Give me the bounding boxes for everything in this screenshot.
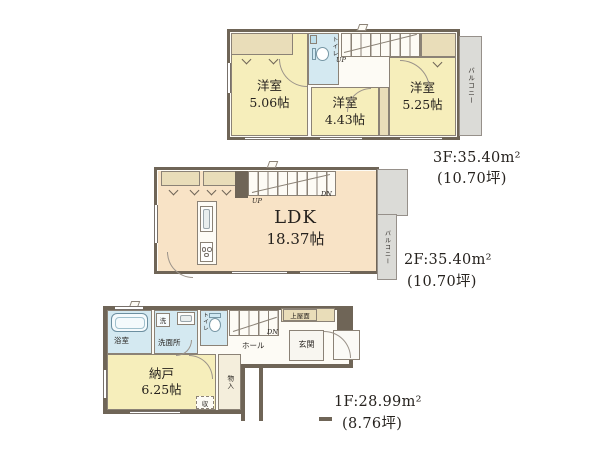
floor2-balcony: バルコニー: [377, 214, 397, 280]
kitchen-sink-basin: [203, 209, 210, 229]
bathroom-label: 浴室: [114, 335, 129, 346]
room-size: 5.06帖: [249, 95, 289, 111]
stairs-down-label: DN: [321, 190, 332, 198]
sink-icon: [177, 312, 195, 325]
balcony-label: バルコニー: [383, 230, 392, 265]
window: [400, 137, 442, 141]
porch-wall: [259, 364, 263, 421]
window: [300, 271, 350, 275]
canopy-label-box: 上屋面: [283, 309, 317, 321]
toilet-label: トイレ: [330, 36, 339, 57]
toilet-label: トイレ: [201, 312, 209, 332]
room-size: 5.25帖: [402, 97, 442, 113]
hanger-chevron-icon: [222, 186, 232, 196]
hanger-chevron-icon: [169, 186, 179, 196]
balcony-label: バルコニー: [466, 67, 476, 105]
washer-label: 洗: [160, 315, 167, 325]
burner-icon: [207, 247, 212, 252]
entrance-step-mark: [319, 417, 332, 421]
burner-icon: [202, 247, 207, 252]
floor1-tsubo-label: (8.76坪): [342, 412, 402, 433]
hanger-chevron-icon: [242, 55, 252, 65]
stairs-up-label: UP: [336, 56, 346, 64]
ldk-name: LDK: [233, 207, 358, 228]
canopy-label: 上屋面: [290, 310, 310, 320]
floor3-balcony: バルコニー: [459, 36, 482, 136]
closet: [231, 33, 293, 55]
hanger-chevron-icons: [434, 59, 441, 66]
window: [115, 306, 143, 310]
floor2-balcony-upper: [377, 169, 408, 216]
hanger-chevron-icons: [243, 56, 277, 63]
stairs-up-label: UP: [252, 197, 262, 205]
closet: [421, 33, 456, 57]
hall-label: ホール: [242, 340, 265, 351]
closet: [379, 87, 389, 136]
stairs-down-label: DN: [267, 328, 278, 336]
hanger-chevron-icon: [190, 186, 200, 196]
window: [245, 137, 290, 141]
porch-wall: [241, 364, 245, 421]
floor3-tsubo-label: (10.70坪): [437, 167, 507, 188]
washer-icon: 洗: [156, 313, 170, 327]
storage-size: 6.25帖: [141, 382, 181, 398]
wall: [241, 364, 353, 368]
sink-basin: [180, 315, 192, 322]
door-arc: [167, 252, 193, 278]
room-size: 4.43帖: [325, 112, 365, 128]
window: [154, 205, 158, 243]
hanger-chevron-icon: [269, 55, 279, 65]
floor3-area-label: 3F:35.40m²: [433, 150, 521, 166]
bathtub-icon: [111, 313, 148, 332]
cupboard-label: 収: [202, 398, 209, 408]
ldk-size: 18.37帖: [233, 228, 358, 249]
toilet-icon: [316, 47, 329, 61]
bathtub-inner: [115, 317, 145, 329]
floor2-area-label: 2F:35.40m²: [404, 252, 492, 268]
floor2-tsubo-label: (10.70坪): [407, 270, 477, 291]
wall: [235, 171, 248, 198]
hanger-chevron-icon: [433, 58, 443, 68]
toilet-icon: [209, 318, 221, 332]
window: [103, 370, 107, 398]
window: [320, 137, 362, 141]
window: [227, 63, 231, 93]
ldk-label-block: LDK 18.37帖: [233, 207, 358, 249]
wall: [337, 308, 350, 330]
closet-label: 物入: [225, 375, 233, 390]
window: [232, 271, 287, 275]
storage-name: 納戸: [149, 366, 174, 382]
cupboard-box: 収: [196, 396, 214, 409]
toilet-sink-icon: [310, 35, 317, 44]
floorplan-canvas: バルコニー 洋室 5.06帖 洋室 4.43帖 洋室 5.25帖: [0, 0, 600, 450]
entrance-label: 玄関: [299, 340, 315, 350]
closet-monoire: 物入: [218, 354, 241, 410]
stove-icon: [200, 242, 213, 262]
floor1-area-label: 1F:28.99m²: [334, 394, 422, 410]
room-name: 洋室: [257, 78, 282, 94]
kitchen-sink-icon: [200, 206, 213, 232]
window: [130, 411, 180, 415]
closet: [161, 171, 200, 186]
entrance: 玄関: [289, 330, 324, 361]
burner-icon: [204, 253, 209, 258]
hanger-chevron-icon: [207, 186, 217, 196]
hanger-chevron-icons: [170, 187, 198, 194]
